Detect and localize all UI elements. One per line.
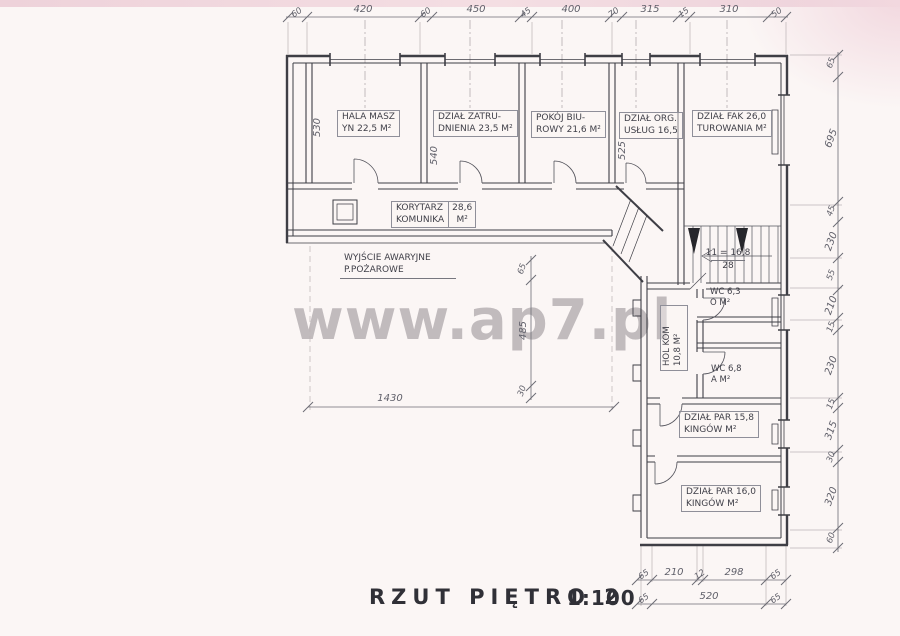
room-area-unit: M² — [456, 215, 467, 225]
centre-lines — [365, 20, 727, 108]
room-label-korytarz: KORYTARZ KOMUNIKA 28,6 M² — [391, 201, 476, 228]
room-label-line: WYJŚCIE AWARYJNE — [344, 253, 431, 263]
room-label-line: P.POŻAROWE — [344, 265, 404, 275]
room-label-line: KOMUNIKA — [396, 215, 444, 225]
scanned-floorplan-page: www.ap7.pl — [0, 0, 900, 636]
room-label-line: KORYTARZ — [396, 203, 443, 213]
stair-formula: 11 = 16,8 — [706, 248, 751, 258]
room-label-line: DZIAŁ PAR 15,8 — [684, 413, 754, 423]
room-label-line: DZIAŁ ZATRU- — [438, 112, 501, 122]
stair-count: 28 — [711, 260, 745, 273]
room-label-wc-dolne: WC 6,8 A M² — [707, 363, 746, 387]
room-label-line: TUROWANIA M² — [697, 124, 767, 134]
room-label-dzial-zatrudnienia: DZIAŁ ZATRU- DNIENIA 23,5 M² — [433, 110, 518, 137]
dim-label: 485 — [518, 321, 529, 340]
room-label-line: HOL KOM — [662, 326, 672, 366]
dim-label: 520 — [699, 591, 718, 602]
room-label-wc-gorne: WC 6,3 O M² — [706, 286, 745, 310]
room-label-line: WC 6,3 — [710, 287, 741, 297]
label-wyjscie-awaryjne: WYJŚCIE AWARYJNE P.POŻAROWE — [340, 252, 456, 279]
dim-label: 525 — [617, 141, 628, 160]
room-label-line: DNIENIA 23,5 M² — [438, 124, 513, 134]
dim-label: 1430 — [377, 393, 402, 404]
dim-label: 310 — [719, 4, 738, 15]
room-label-line: POKÓJ BIU- — [536, 113, 585, 123]
room-label-line: KINGÓW M² — [686, 499, 738, 509]
room-label-line: WC 6,8 — [711, 364, 742, 374]
room-label-line: A M² — [711, 375, 730, 385]
room-label-dzial-parkingow-1: DZIAŁ PAR 15,8 KINGÓW M² — [679, 411, 759, 438]
dimension-ticks — [283, 12, 843, 609]
room-label-line: USŁUG 16,5 — [624, 126, 678, 136]
room-label-dzial-parkingow-2: DZIAŁ PAR 16,0 KINGÓW M² — [681, 485, 761, 512]
room-label-hala-maszyn: HALA MASZ YN 22,5 M² — [337, 110, 400, 137]
room-label-dzial-org-uslug: DZIAŁ ORG. USŁUG 16,5 — [619, 112, 683, 139]
room-label-line: YN 22,5 M² — [342, 124, 391, 134]
dim-label: 540 — [429, 146, 440, 165]
korytarz-area-cell: 28,6 M² — [448, 202, 475, 227]
room-label-line: DZIAŁ PAR 16,0 — [686, 487, 756, 497]
dim-label: 400 — [561, 4, 580, 15]
label-schody: 11 = 16,8 28 — [699, 247, 757, 273]
room-label-line: 10,8 M² — [673, 334, 683, 366]
dim-label: 450 — [466, 4, 485, 15]
dim-label: 298 — [724, 567, 743, 578]
dim-label: 420 — [353, 4, 372, 15]
room-area-value: 28,6 — [452, 203, 472, 213]
room-label-line: KINGÓW M² — [684, 425, 736, 435]
dim-label: 530 — [312, 118, 323, 137]
room-label-line: HALA MASZ — [342, 112, 395, 122]
room-label-dzial-fakturowania: DZIAŁ FAK 26,0 TUROWANIA M² — [692, 110, 772, 137]
dim-label: 315 — [640, 4, 659, 15]
korytarz-name-cell: KORYTARZ KOMUNIKA — [392, 202, 448, 227]
room-label-line: O M² — [710, 298, 730, 308]
floorplan-drawing — [0, 0, 900, 636]
dim-label: 210 — [664, 567, 683, 578]
room-label-hol-kom: HOL KOM 10,8 M² — [660, 305, 688, 371]
room-label-line: ROWY 21,6 M² — [536, 125, 601, 135]
room-label-line: DZIAŁ FAK 26,0 — [697, 112, 766, 122]
room-label-pokoj-biurowy: POKÓJ BIU- ROWY 21,6 M² — [531, 111, 606, 138]
room-label-line: DZIAŁ ORG. — [624, 114, 677, 124]
drawing-scale: 1:100 — [567, 586, 636, 610]
